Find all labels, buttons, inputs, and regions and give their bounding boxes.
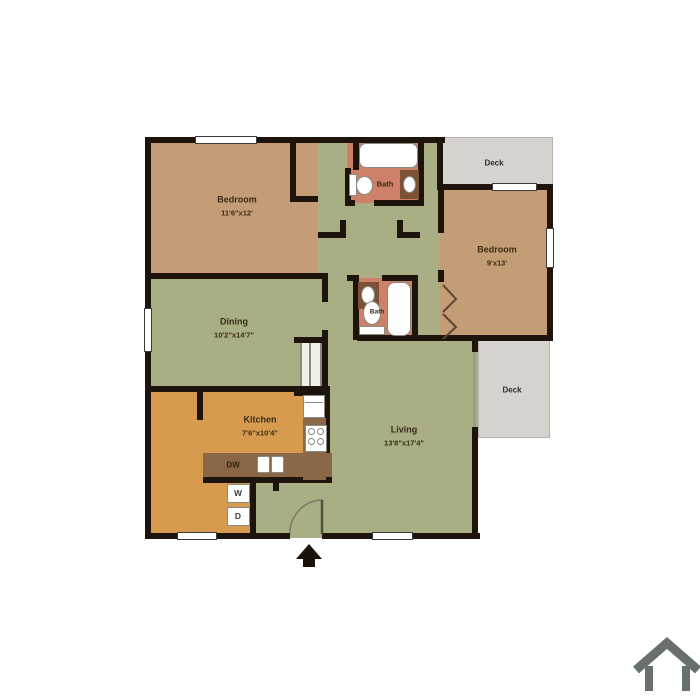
- living-label: Living 13'8"x17'4": [384, 424, 424, 449]
- deck-top-label: Deck: [484, 159, 503, 168]
- house-logo-icon: [636, 643, 698, 691]
- bath-top-label: Bath: [377, 180, 394, 189]
- entry-arrow-icon: [296, 544, 322, 567]
- closet-bifold-door-1: [443, 285, 456, 312]
- bedroom2-label: Bedroom 9'x13': [477, 244, 517, 269]
- bath-mid-label: Bath: [370, 309, 384, 316]
- plan-vector-layer: [0, 0, 700, 700]
- floor-plan: DW W D Bedroom 11'6"x12': [0, 0, 700, 700]
- bedroom1-label: Bedroom 11'6"x12': [217, 194, 257, 219]
- closet-bifold-door-2: [443, 314, 456, 339]
- dining-label: Dining 10'2"x14'7": [214, 316, 254, 341]
- entry-door-arc: [290, 500, 322, 533]
- deck-bottom-label: Deck: [502, 386, 521, 395]
- kitchen-label: Kitchen 7'6"x10'4": [242, 414, 278, 439]
